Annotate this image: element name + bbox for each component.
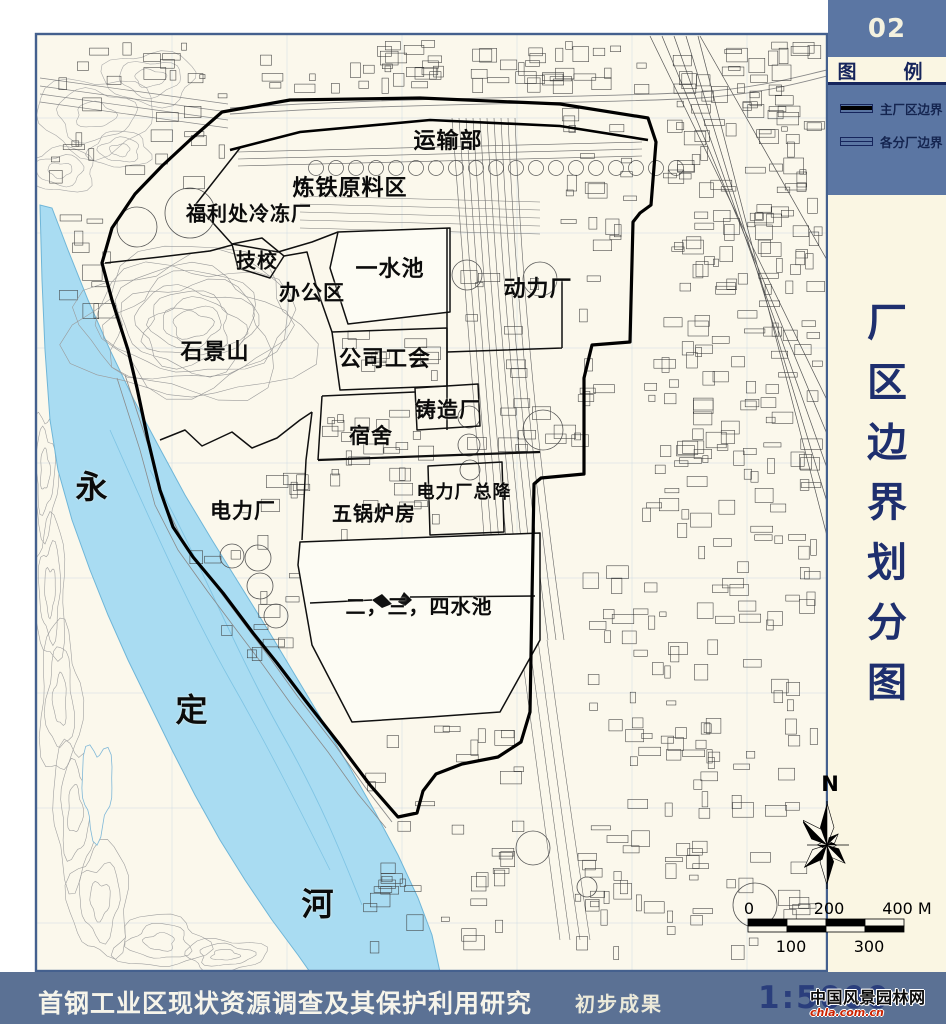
north-arrow: N [803, 773, 857, 891]
scale-tick-label: 0 [744, 899, 754, 918]
watermark-logo: 中国风景园林网 chla.com.cn [810, 990, 944, 1018]
bottom-bar: 首钢工业区现状资源调查及其保护利用研究 初步成果 1:5000 [0, 972, 946, 1024]
scale-tick-label: 400 M [882, 899, 931, 918]
boundary-swatch-icon [840, 104, 873, 113]
north-label: N [803, 773, 857, 795]
watermark-text: 中国风景园林网 [810, 990, 944, 1006]
legend-item: 主厂区边界 [840, 99, 946, 118]
project-title: 首钢工业区现状资源调查及其保护利用研究 [38, 984, 532, 1020]
compass-rose-icon [803, 795, 857, 891]
scale-bar: 0200400 M 100300 [735, 893, 935, 958]
scale-bar-graphic [735, 918, 935, 940]
page-number: 02 [828, 0, 946, 57]
watermark-url: chla.com.cn [810, 1007, 944, 1018]
page: 运输部 炼铁原料区 福利处冷冻厂 技校 办公区 一水池 动力厂 石景山 公司工会… [0, 0, 946, 1024]
legend-item: 各分厂边界 [840, 132, 946, 151]
status-label: 初步成果 [575, 988, 663, 1017]
map-title: 厂区边界划分图 [828, 293, 946, 713]
scale-tick-label: 300 [854, 937, 885, 956]
scale-tick-label: 200 [814, 899, 845, 918]
boundary-swatch-icon [840, 137, 873, 146]
legend-item-label: 主厂区边界 [880, 99, 943, 118]
legend-item-label: 各分厂边界 [880, 132, 943, 151]
scale-tick-label: 100 [776, 937, 807, 956]
legend-title: 图 例 [828, 57, 946, 85]
legend: 主厂区边界 各分厂边界 [828, 85, 946, 195]
